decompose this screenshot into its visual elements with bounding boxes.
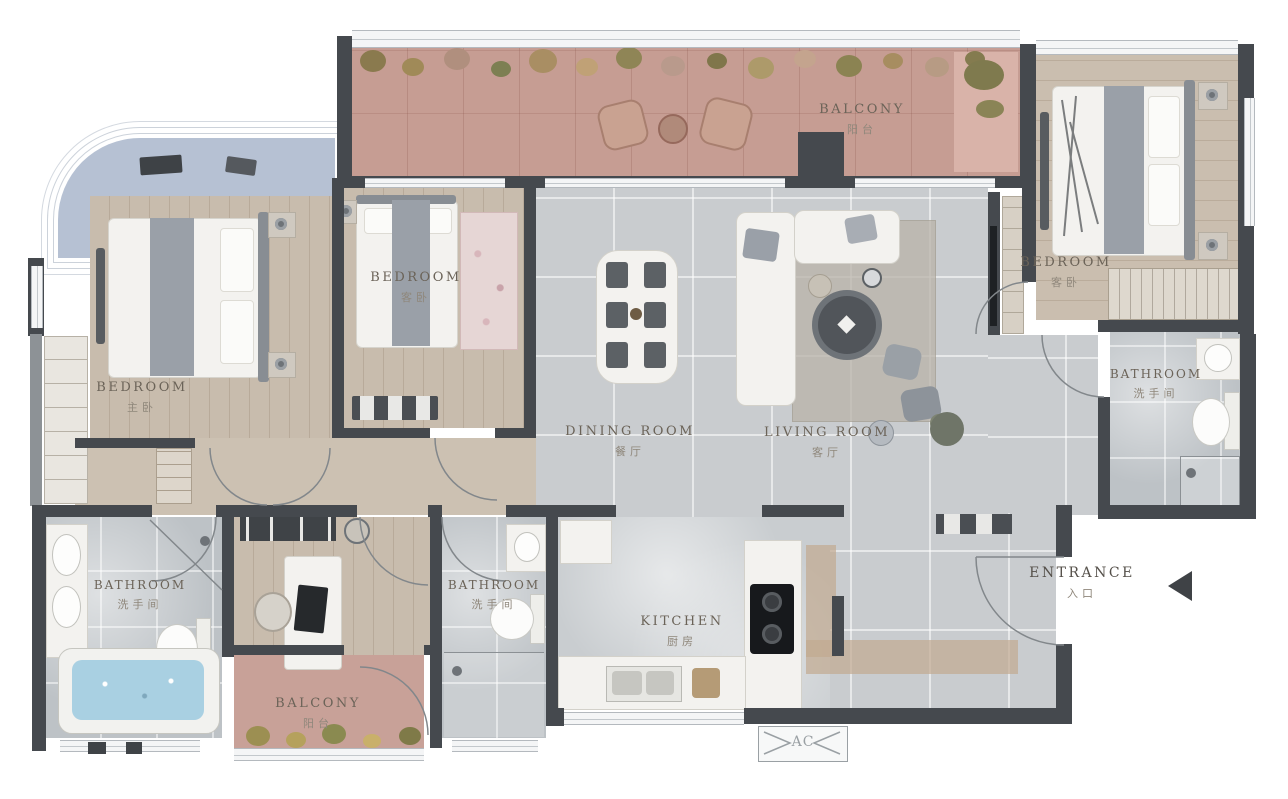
room-label-living: LIVING ROOM 客厅 — [764, 425, 890, 460]
room-label-cn: 客卧 — [1020, 274, 1111, 290]
entrance-label: ENTRANCE 入口 — [1029, 565, 1135, 601]
room-label-dining: DINING ROOM 餐厅 — [565, 424, 695, 459]
room-label-bathroom-right: BATHROOM 洗手间 — [1110, 367, 1202, 401]
room-label-en: LIVING ROOM — [764, 425, 890, 440]
room-label-balcony-top: BALCONY 阳台 — [819, 102, 905, 137]
room-label-bedroom-middle: BEDROOM 客卧 — [370, 270, 461, 305]
room-label-cn: 洗手间 — [448, 596, 540, 612]
room-label-en: BATHROOM — [448, 578, 540, 592]
room-label-cn: 阳台 — [275, 715, 361, 731]
room-label-cn: 餐厅 — [565, 443, 695, 459]
door-swing-arcs — [0, 0, 1288, 799]
room-label-en: BEDROOM — [96, 380, 187, 395]
room-label-en: BEDROOM — [370, 270, 461, 285]
room-label-cn: 客厅 — [764, 444, 890, 460]
entrance-label-en: ENTRANCE — [1029, 565, 1135, 581]
room-label-cn: 洗手间 — [94, 596, 186, 612]
room-label-bedroom-master: BEDROOM 主卧 — [96, 380, 187, 415]
room-label-en: BEDROOM — [1020, 255, 1111, 270]
room-label-cn: 洗手间 — [1110, 385, 1202, 401]
room-label-en: BALCONY — [819, 102, 905, 117]
room-label-balcony-bottom: BALCONY 阳台 — [275, 696, 361, 731]
room-label-cn: 客卧 — [370, 289, 461, 305]
entrance-label-cn: 入口 — [1029, 585, 1135, 601]
room-label-cn: 阳台 — [819, 121, 905, 137]
room-label-cn: 主卧 — [96, 399, 187, 415]
floor-plan: BALCONY 阳台 BEDROOM 主卧 BEDROOM 客卧 DINING … — [0, 0, 1288, 799]
bamboo-art — [1062, 96, 1098, 236]
ac-label: AC — [788, 734, 818, 750]
room-label-en: BATHROOM — [94, 578, 186, 592]
room-label-en: KITCHEN — [640, 614, 723, 629]
room-label-bedroom-right: BEDROOM 客卧 — [1020, 255, 1111, 290]
room-label-en: BATHROOM — [1110, 367, 1202, 381]
entrance-arrow-icon — [1168, 571, 1192, 601]
room-label-en: BALCONY — [275, 696, 361, 711]
room-label-bathroom-left: BATHROOM 洗手间 — [94, 578, 186, 612]
room-label-kitchen: KITCHEN 厨房 — [640, 614, 723, 649]
room-label-bathroom-middle: BATHROOM 洗手间 — [448, 578, 540, 612]
room-label-en: DINING ROOM — [565, 424, 695, 439]
room-label-cn: 厨房 — [640, 633, 723, 649]
